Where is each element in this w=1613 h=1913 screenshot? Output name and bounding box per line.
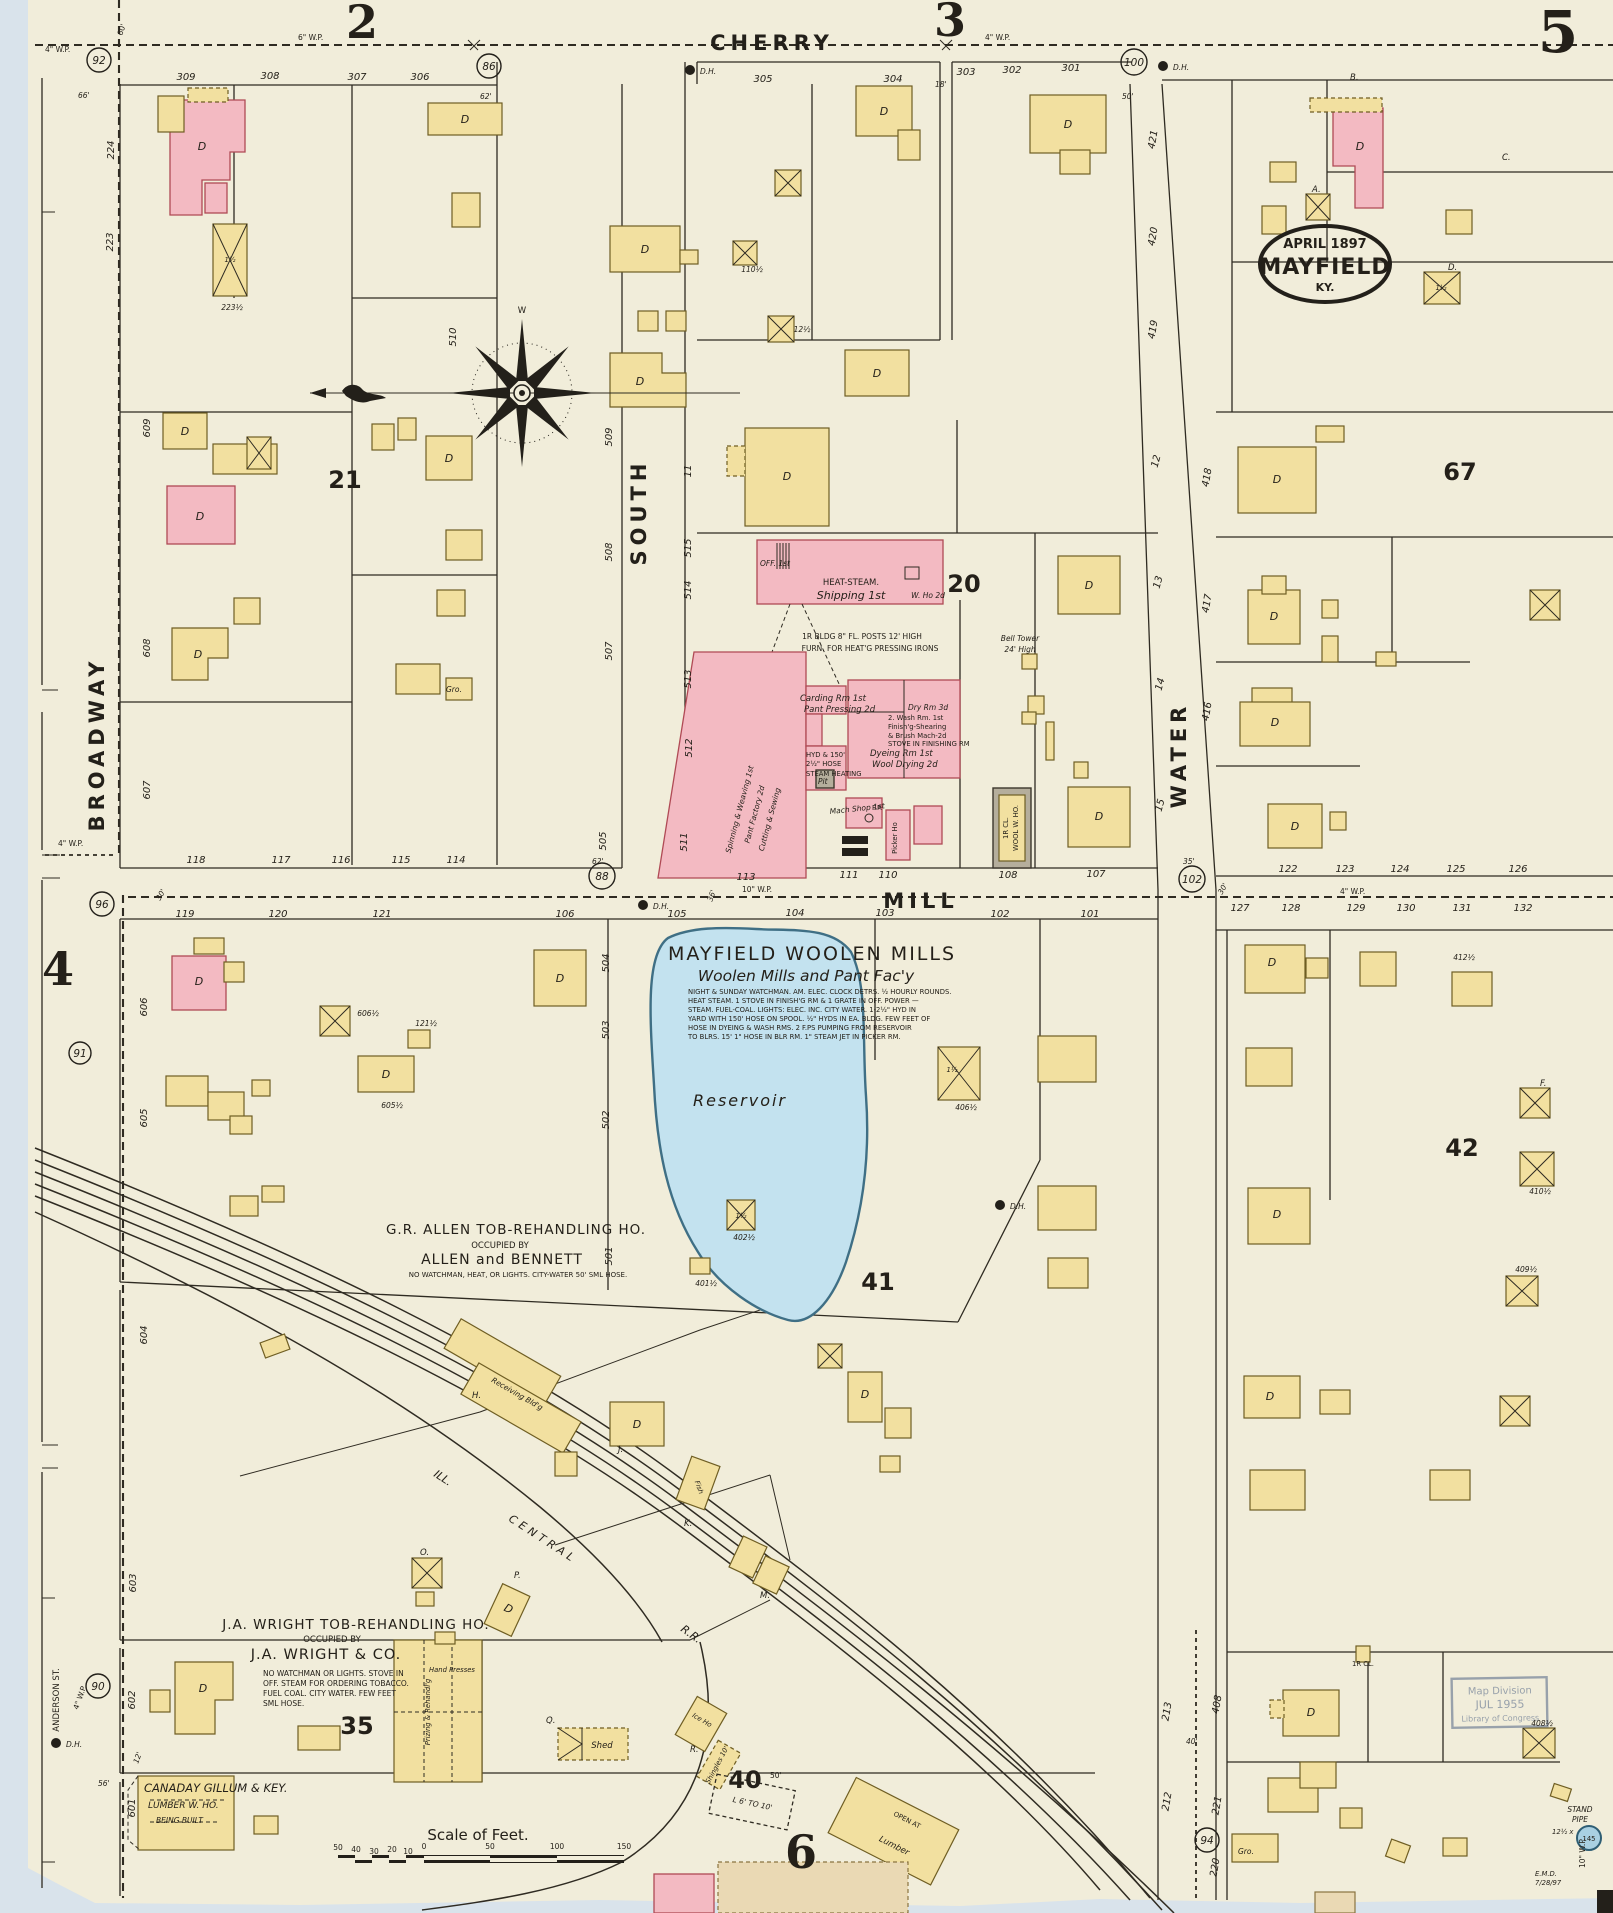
map-label: 502: [601, 1110, 612, 1129]
map-label: 106: [555, 909, 574, 920]
map-label: Prizing & Rehandl'g: [424, 1678, 432, 1745]
map-label: Pit: [818, 777, 829, 786]
xbox: [818, 1344, 842, 1368]
map-shape: [51, 1738, 61, 1748]
map-label: 402½: [733, 1233, 755, 1242]
map-shape: [519, 390, 525, 396]
map-label: HEAT STEAM. 1 STOVE IN FINISH'G RM & 1 G…: [688, 997, 919, 1005]
map-label: 2. Wash Rm. 1st: [888, 714, 944, 722]
block-20: 20: [947, 570, 980, 598]
map-label: 302: [1002, 65, 1021, 76]
map-label: 503: [601, 1020, 612, 1039]
block-42: 42: [1445, 1134, 1478, 1162]
map-label: D: [1273, 1208, 1281, 1221]
block-40: 40: [728, 1766, 761, 1794]
title-oval: APRIL 1897 MAYFIELD KY.: [1259, 226, 1390, 302]
map-label: 309: [176, 72, 195, 83]
sanborn-map-sheet: W APRIL 1897 MAYFIELD KY. Map Division J…: [0, 0, 1613, 1913]
map-shape: [234, 598, 260, 624]
map-shape: [1443, 1838, 1467, 1856]
map-label: STAND: [1567, 1805, 1592, 1814]
map-label: D: [1307, 1706, 1315, 1719]
map-label: STEAM. FUEL-COAL. LIGHTS: ELEC. INC. CIT…: [688, 1006, 916, 1014]
map-label: 409½: [1515, 1265, 1537, 1274]
compass-letter: W: [518, 306, 527, 316]
boiler: [842, 848, 868, 856]
block-35: 35: [340, 1712, 373, 1740]
map-label: 507: [604, 641, 615, 661]
map-label: D: [1356, 140, 1364, 153]
map-shape: [1022, 712, 1036, 724]
map-label: 1½: [736, 1212, 747, 1220]
map-label: H.: [472, 1391, 481, 1401]
map-shape: [424, 1855, 624, 1856]
map-label: Finish'g-Shearing: [888, 723, 946, 731]
map-shape: [1262, 576, 1286, 594]
map-label: LUMBER W. HO.: [148, 1801, 219, 1811]
map-shape: [398, 418, 416, 440]
map-label: 132: [1513, 903, 1532, 914]
map-label: D: [633, 1418, 641, 1431]
map-label: Picker Ho: [891, 822, 899, 854]
xbox: [1520, 1152, 1554, 1186]
map-shape: [452, 193, 480, 227]
map-shape: [880, 1456, 900, 1472]
map-shape: [372, 424, 394, 450]
map-label: 4" W.P.: [1340, 887, 1365, 896]
map-label: & Brush Mach-2d: [888, 732, 946, 740]
map-label: D: [196, 510, 204, 523]
map-shape: [1446, 210, 1472, 234]
map-shape: [654, 1874, 714, 1913]
map-shape: [1270, 1700, 1284, 1718]
map-label: FUEL COAL. CITY WATER. FEW FEET: [263, 1689, 396, 1698]
map-label: D: [880, 105, 888, 118]
map-shape: [437, 590, 465, 616]
map-label: F.P.: [872, 804, 882, 812]
map-label: 0: [422, 1842, 427, 1851]
page-ref-3: 3: [934, 0, 966, 47]
page-ref-6: 6: [785, 1825, 817, 1879]
map-label: 110½: [741, 265, 763, 274]
map-label: D: [1266, 1390, 1274, 1403]
map-label: 306: [410, 72, 429, 83]
map-label: D: [861, 1388, 869, 1401]
map-label: D.H.: [1010, 1202, 1026, 1211]
street-broadway: BROADWAY: [85, 657, 109, 832]
map-label: D.H.: [1173, 63, 1189, 72]
map-label: Q.: [546, 1716, 555, 1726]
page-ref-4: 4: [42, 942, 74, 996]
map-label: 10: [403, 1847, 413, 1856]
map-label: 505: [598, 831, 609, 850]
map-label: 20: [387, 1845, 397, 1854]
map-label: A.: [1311, 185, 1321, 195]
map-label: 40: [351, 1845, 361, 1854]
wm-title: MAYFIELD WOOLEN MILLS: [668, 943, 956, 965]
map-label: J.A. WRIGHT & CO.: [250, 1647, 402, 1663]
map-shape: [372, 1855, 389, 1858]
map-label: K.: [684, 1519, 692, 1529]
bell-tower: [1022, 654, 1037, 669]
map-label: YARD WITH 150' HOSE ON SPOOL. ½" HYDS IN…: [687, 1015, 930, 1023]
map-label: ALLEN and BENNETT: [421, 1252, 583, 1268]
map-label: D: [1268, 956, 1276, 969]
map-label: 126: [1508, 864, 1527, 875]
map-label: 223: [105, 232, 116, 251]
map-label: 94: [1200, 1835, 1213, 1847]
map-shape: [680, 250, 698, 264]
map-shape: [166, 1076, 208, 1106]
map-label: 2½" HOSE: [806, 760, 841, 768]
map-label: D: [1270, 610, 1278, 623]
map-label: D: [1085, 579, 1093, 592]
map-label: D: [636, 375, 644, 388]
map-label: M.: [760, 1591, 770, 1601]
map-shape: [416, 1592, 434, 1606]
map-label: 50: [485, 1842, 495, 1851]
map-label: 91: [73, 1048, 86, 1060]
map-label: 116: [331, 855, 350, 866]
page-corner-mark: [1597, 1890, 1613, 1913]
map-label: D: [461, 113, 469, 126]
map-label: 305: [753, 74, 772, 85]
map-shape: [408, 1030, 430, 1048]
map-label: R.: [690, 1745, 699, 1755]
map-label: 605: [139, 1108, 150, 1127]
map-shape: [194, 938, 224, 954]
map-label: 123: [1335, 864, 1354, 875]
map-label: Hand Presses: [429, 1666, 475, 1674]
map-shape: [355, 1860, 372, 1863]
xbox: [1306, 194, 1330, 220]
map-label: 104: [785, 908, 804, 919]
scale-title: Scale of Feet.: [427, 1826, 528, 1844]
map-shape: [1048, 1258, 1088, 1288]
map-label: 1½: [225, 256, 236, 264]
map-label: 606: [139, 997, 150, 1016]
map-shape: [1315, 1892, 1355, 1913]
map-label: D.H.: [66, 1740, 82, 1749]
map-label: 4" W.P.: [58, 839, 83, 848]
map-label: D: [1064, 118, 1072, 131]
map-label: 609: [142, 418, 153, 437]
map-label: 10" W.P.: [742, 885, 772, 894]
map-label: 86: [482, 61, 496, 73]
map-label: 150: [617, 1842, 632, 1851]
map-label: D: [445, 452, 453, 465]
map-label: 6" W.P.: [298, 33, 323, 42]
map-label: 100: [1124, 57, 1144, 69]
map-label: 131: [1452, 903, 1471, 914]
map-label: F.: [1540, 1079, 1547, 1089]
map-shape: [1316, 426, 1344, 442]
map-label: 401½: [695, 1279, 717, 1288]
map-label: 121: [372, 909, 391, 920]
street-water: WATER: [1167, 702, 1191, 809]
map-label: Dry Rm 3d: [908, 703, 948, 712]
wm-subtitle: Woolen Mills and Pant Fac'y: [698, 967, 915, 985]
map-label: 40': [1186, 1737, 1198, 1746]
map-shape: [885, 1408, 911, 1438]
xbox: [1500, 1396, 1530, 1426]
map-shape: [1320, 1390, 1350, 1414]
map-label: D: [1095, 810, 1103, 823]
map-label: Bell Tower: [1001, 634, 1040, 643]
map-shape: [685, 65, 695, 75]
map-label: 4" W.P.: [45, 45, 70, 54]
map-shape: [435, 1632, 455, 1644]
map-label: 114: [446, 855, 465, 866]
map-label: 514: [683, 580, 694, 599]
map-label: 111: [839, 870, 858, 881]
map-shape: [389, 1860, 406, 1863]
xbox: [768, 316, 794, 342]
block-67: 67: [1443, 458, 1476, 486]
map-label: 512: [684, 738, 695, 757]
map-label: D: [783, 470, 791, 483]
map-label: Pant Pressing 2d: [804, 705, 876, 715]
map-shape: [1376, 652, 1396, 666]
map-label: HOSE IN DYEING & WASH RMS. 2 F.PS PUMPIN…: [688, 1024, 912, 1032]
map-label: 35': [1183, 857, 1195, 866]
map-label: 412½: [1453, 953, 1475, 962]
map-label: 125: [1446, 864, 1465, 875]
xbox: [733, 241, 757, 265]
map-label: OFF. STEAM FOR ORDERING TOBACCO.: [263, 1679, 409, 1688]
map-shape: [995, 1200, 1005, 1210]
map-label: 1R CL.: [1352, 1660, 1374, 1668]
map-label: 127: [1230, 903, 1250, 914]
map-label: 608: [142, 638, 153, 657]
map-label: SML HOSE.: [263, 1699, 304, 1708]
map-label: D: [1273, 473, 1281, 486]
map-label: 508: [604, 542, 615, 561]
map-label: D: [556, 972, 564, 985]
map-shape: [1300, 1762, 1336, 1788]
map-shape: [1028, 696, 1044, 714]
map-label: 118: [186, 855, 205, 866]
map-label: D.H.: [700, 67, 716, 76]
map-label: 410½: [1529, 1187, 1551, 1196]
map-shape: [1246, 1048, 1292, 1086]
map-label: 509: [604, 427, 615, 446]
map-label: Gro.: [446, 685, 462, 694]
map-shape: [638, 311, 658, 331]
map-label: NO WATCHMAN, HEAT, OR LIGHTS. CITY-WATER…: [409, 1271, 627, 1279]
map-label: 50: [333, 1843, 343, 1852]
map-shape: [205, 183, 227, 213]
map-shape: [254, 1816, 278, 1834]
map-label: 105: [667, 909, 686, 920]
map-label: 62': [592, 857, 604, 866]
map-shape: [262, 1186, 284, 1202]
map-label: 110: [878, 870, 897, 881]
xbox: [320, 1006, 350, 1036]
map-label: 224: [106, 140, 117, 159]
map-shape: [298, 1726, 340, 1750]
map-label: 115: [391, 855, 410, 866]
map-label: STOVE IN FINISHING RM: [888, 740, 970, 748]
page-ref-2: 2: [346, 0, 378, 49]
map-label: 308: [260, 71, 279, 82]
map-label: OFF. 1st: [760, 559, 791, 568]
map-label: 601: [127, 1798, 138, 1817]
map-label: 12½: [794, 325, 812, 334]
map-label: D: [1291, 820, 1299, 833]
map-label: 50': [1122, 92, 1134, 101]
xbox: [1530, 590, 1560, 620]
map-label: 515: [683, 538, 694, 557]
xbox: [938, 1047, 980, 1100]
map-label: Shed: [591, 1741, 613, 1751]
map-shape: [1046, 722, 1054, 760]
map-label: 1R CL.: [1002, 817, 1010, 839]
map-label: 50': [770, 1771, 782, 1780]
oval-state: KY.: [1316, 281, 1335, 294]
map-shape: [1038, 1186, 1096, 1230]
map-label: 145: [1583, 1835, 1596, 1843]
map-shape: [1360, 952, 1396, 986]
map-shape: [806, 714, 822, 746]
street-south: SOUTH: [627, 459, 651, 566]
map-shape: [1245, 945, 1305, 993]
xbox: [1523, 1728, 1555, 1758]
loc-line1: Map Division: [1468, 1685, 1532, 1697]
map-shape: [555, 1452, 577, 1476]
map-shape: [252, 1080, 270, 1096]
map-shape: [1306, 958, 1328, 978]
map-label: HEAT-STEAM.: [823, 578, 879, 588]
map-label: D: [641, 243, 649, 256]
map-shape: [1330, 812, 1346, 830]
map-label: 108: [998, 870, 1017, 881]
map-label: 301: [1061, 63, 1080, 74]
map-shape: [727, 446, 745, 476]
page-number-5: 5: [1538, 0, 1578, 66]
map-shape: [1310, 98, 1382, 112]
map-label: 303: [956, 67, 975, 78]
map-label: 120: [268, 909, 287, 920]
map-label: 30: [369, 1847, 379, 1856]
map-label: 103: [875, 908, 894, 919]
map-label: D: [194, 648, 202, 661]
map-label: 513: [683, 669, 694, 688]
map-label: 122: [1278, 864, 1297, 875]
map-label: 88: [595, 871, 609, 883]
map-label: 501: [604, 1246, 615, 1265]
map-label: 62': [480, 92, 492, 101]
map-label: 504: [601, 953, 612, 972]
map-shape: [1430, 1470, 1470, 1500]
oval-city: MAYFIELD: [1259, 255, 1390, 280]
block-21: 21: [328, 466, 361, 494]
map-label: 602: [127, 1690, 138, 1709]
map-label: D: [198, 140, 206, 153]
reservoir-label: Reservoir: [693, 1091, 787, 1110]
map-label: TO BLRS. 15' 1" HOSE IN BLR RM. 1" STEAM…: [687, 1033, 901, 1041]
map-shape: [1250, 1470, 1305, 1510]
map-label: 1½: [947, 1066, 958, 1074]
street-cherry: CHERRY: [710, 31, 834, 55]
map-label: 511: [679, 832, 690, 851]
map-label: NO WATCHMAN OR LIGHTS. STOVE IN: [263, 1669, 404, 1678]
street-anderson: ANDERSON ST.: [52, 1668, 62, 1731]
map-label: Wool Drying 2d: [872, 760, 938, 770]
map-shape: [1452, 972, 1492, 1006]
map-label: 113: [736, 872, 755, 883]
tobacco-warehouse: [394, 1640, 482, 1782]
map-label: 7/28/97: [1535, 1879, 1562, 1887]
street-mill: MILL: [883, 889, 958, 913]
map-label: OCCUPIED BY: [303, 1635, 361, 1645]
map-label: P.: [514, 1571, 521, 1581]
xbox: [1506, 1276, 1538, 1306]
map-label: 66': [78, 91, 90, 100]
map-shape: [158, 96, 184, 132]
map-label: E.M.D.: [1535, 1870, 1557, 1878]
map-label: 607: [142, 780, 153, 800]
map-shape: [230, 1196, 258, 1216]
block-41: 41: [861, 1268, 894, 1296]
map-shape: [1038, 1036, 1096, 1082]
map-shape: [666, 311, 686, 331]
map-label: 304: [883, 74, 902, 85]
boiler: [842, 836, 868, 844]
map-label: NIGHT & SUNDAY WATCHMAN. AM. ELEC. CLOCK…: [688, 988, 951, 996]
map-label: D: [195, 975, 203, 988]
map-label: 124: [1390, 864, 1409, 875]
xbox: [412, 1558, 442, 1588]
map-label: OCCUPIED BY: [471, 1241, 529, 1251]
map-label: C.: [1502, 153, 1511, 163]
map-shape: [914, 806, 942, 844]
map-label: 605½: [381, 1101, 403, 1110]
map-label: 102: [1182, 874, 1202, 886]
map-label: 96: [95, 899, 109, 911]
map-label: W. Ho 2d: [911, 591, 945, 600]
map-label: 604: [139, 1325, 150, 1344]
map-label: D.: [1448, 263, 1457, 273]
map-label: J.: [616, 1445, 623, 1455]
map-label: 223½: [221, 303, 243, 312]
map-label: 130: [1396, 903, 1415, 914]
map-shape: [638, 900, 648, 910]
map-shape: [1262, 206, 1286, 234]
map-shape: [1158, 61, 1168, 71]
map-label: 18': [935, 80, 947, 89]
map-label: 406½: [955, 1103, 977, 1112]
map-label: HYD & 150': [806, 751, 845, 759]
map-label: 119: [175, 909, 194, 920]
map-label: O.: [420, 1548, 429, 1558]
map-label: PIPE: [1572, 1815, 1588, 1824]
map-label: 100: [550, 1842, 565, 1851]
map-label: 56': [98, 1779, 110, 1788]
map-label: Carding Rm 1st: [800, 694, 867, 704]
map-label: Gro.: [1238, 1847, 1254, 1856]
map-label: 11: [683, 465, 694, 478]
map-shape: [396, 664, 440, 694]
map-label: 107: [1086, 869, 1106, 880]
map-label: 12½ x: [1552, 1828, 1574, 1836]
map-svg: W APRIL 1897 MAYFIELD KY. Map Division J…: [0, 0, 1613, 1913]
map-label: 606½: [357, 1009, 379, 1018]
map-label: 24' High: [1004, 645, 1035, 654]
map-label: Dyeing Rm 1st: [870, 749, 933, 759]
map-shape: [406, 1855, 424, 1858]
map-shape: [690, 1258, 710, 1274]
